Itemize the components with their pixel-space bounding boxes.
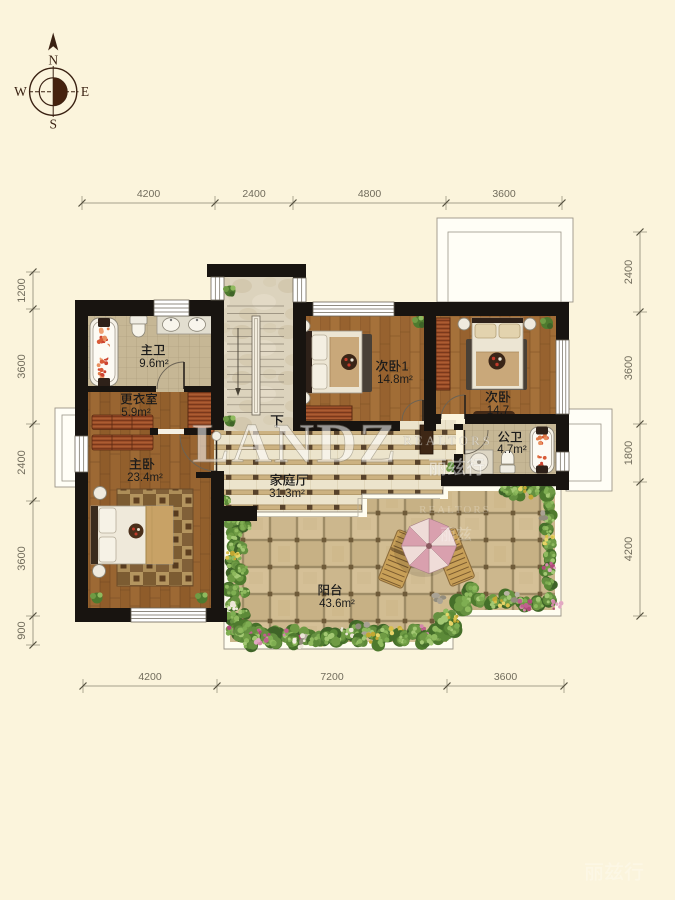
svg-text:S: S bbox=[49, 117, 57, 132]
svg-text:23.4m²: 23.4m² bbox=[127, 472, 163, 484]
svg-text:14.7: 14.7 bbox=[487, 405, 509, 417]
svg-text:LANDZ: LANDZ bbox=[192, 413, 398, 475]
svg-text:3600: 3600 bbox=[623, 356, 635, 380]
svg-text:43.6m²: 43.6m² bbox=[319, 598, 355, 610]
svg-text:1: 1 bbox=[401, 359, 408, 374]
svg-text:2400: 2400 bbox=[242, 188, 266, 200]
svg-text:31.3m²: 31.3m² bbox=[269, 488, 305, 500]
svg-text:3600: 3600 bbox=[492, 188, 516, 200]
svg-text:E: E bbox=[81, 84, 89, 99]
svg-text:9.6m²: 9.6m² bbox=[139, 358, 169, 370]
svg-text:4800: 4800 bbox=[358, 188, 382, 200]
svg-text:REALTORS: REALTORS bbox=[419, 504, 491, 516]
svg-text:7200: 7200 bbox=[320, 671, 344, 683]
svg-text:2400: 2400 bbox=[16, 450, 28, 474]
svg-text:3600: 3600 bbox=[494, 671, 518, 683]
svg-text:4.7m²: 4.7m² bbox=[497, 444, 527, 456]
svg-text:4200: 4200 bbox=[138, 671, 162, 683]
svg-text:5.9m²: 5.9m² bbox=[121, 407, 151, 419]
svg-text:REALTORS: REALTORS bbox=[403, 433, 493, 448]
svg-text:3600: 3600 bbox=[16, 546, 28, 570]
svg-text:1200: 1200 bbox=[16, 278, 28, 302]
svg-text:N: N bbox=[48, 53, 58, 68]
svg-text:4200: 4200 bbox=[137, 188, 161, 200]
svg-text:1800: 1800 bbox=[623, 441, 635, 465]
svg-text:2400: 2400 bbox=[623, 260, 635, 284]
svg-text:900: 900 bbox=[16, 621, 28, 639]
svg-text:W: W bbox=[14, 84, 27, 99]
svg-text:3600: 3600 bbox=[16, 354, 28, 378]
svg-text:14.8m²: 14.8m² bbox=[377, 374, 413, 386]
svg-text:4200: 4200 bbox=[623, 537, 635, 561]
